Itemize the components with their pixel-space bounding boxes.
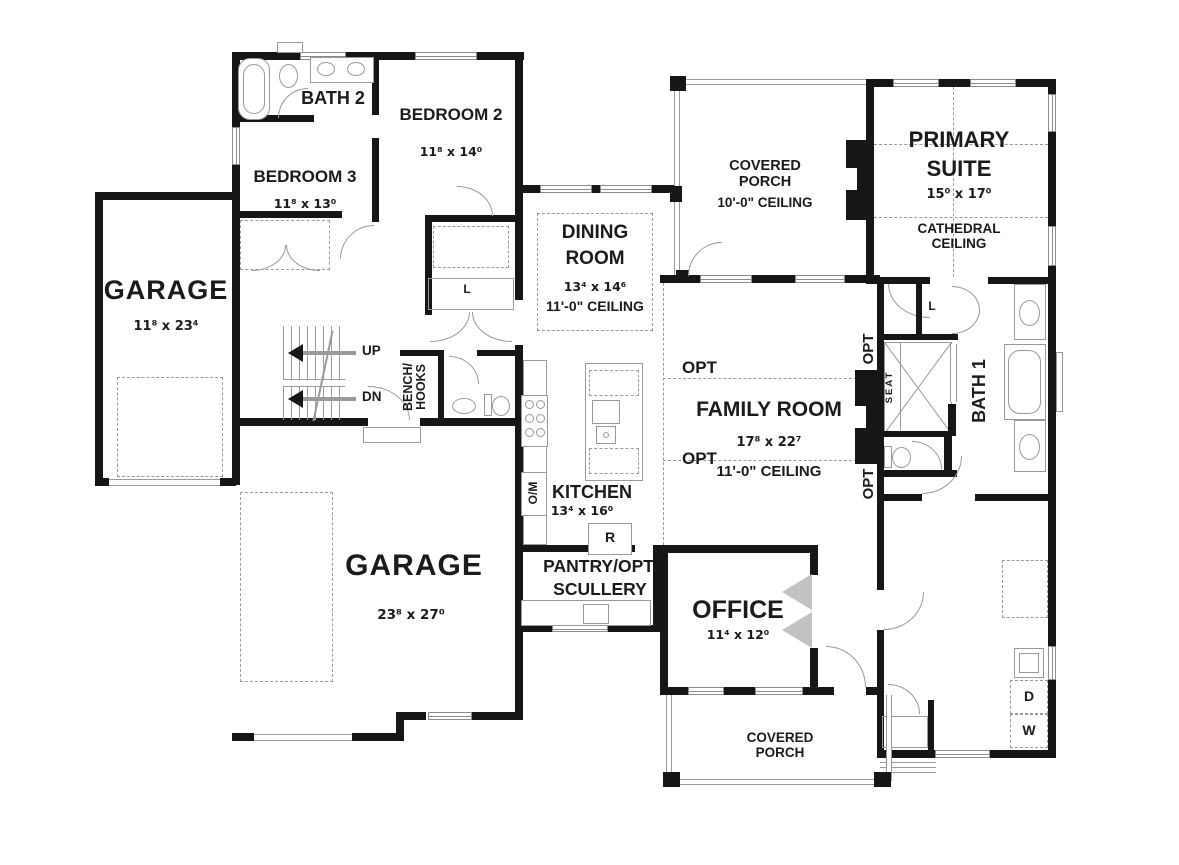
window [970,79,1016,87]
wall [818,687,834,695]
wall [95,478,109,486]
washer-label: W [1010,723,1048,738]
wall [810,648,818,695]
wall [232,211,342,218]
room-ceiling-dining: 11'-0" CEILING [530,299,660,314]
room-dims-primary: 15⁰ x 17⁰ [900,188,1018,202]
up-arrow-head [288,344,303,362]
room-open-edge [663,283,664,545]
porch-edge [666,695,672,781]
room-label-porch-top-1: COVERED [713,159,817,175]
dn-arrow [300,397,356,401]
laundry-sink [1019,653,1039,673]
window [795,275,845,283]
room-label-dining-1: DINING [540,223,650,244]
burner [525,414,534,423]
porch-edge [886,695,892,781]
garage-door [109,479,220,486]
garage-door-path [240,492,333,682]
room-label-family: FAMILY ROOM [688,399,850,422]
window [415,52,477,60]
door-arc [884,592,924,630]
toilet-tank [884,446,892,468]
wall [477,350,521,356]
wall [866,79,874,284]
column [874,772,891,787]
wall [420,418,522,426]
wall [975,494,1056,501]
shower-glass [950,344,957,402]
floor-plan: GARAGE 11⁸ x 23⁴ BATH 2 BEDROOM 3 11⁸ x … [0,0,1179,865]
pantry-sink [583,604,609,624]
fireplace [855,428,878,464]
opt-label-h2: OPT [682,450,730,468]
door-arc [826,646,866,687]
island-seating [589,448,639,474]
room-label-dining-2: ROOM [540,249,650,270]
stoop [363,427,421,443]
room-ceiling-primary-2: CEILING [903,237,1015,252]
room-dims-dining: 13⁴ x 14⁶ [540,280,650,294]
room-dims-garage-left: 11⁸ x 23⁴ [103,320,229,334]
window [1048,226,1056,266]
stairs-dn-label: DN [362,390,392,405]
fireplace [855,370,878,406]
room-ceiling-porch-top: 10'-0" CEILING [703,196,827,211]
wall [988,277,1056,284]
wall [810,545,818,575]
room-label-garage-left: GARAGE [103,276,229,305]
room-dims-family: 17⁸ x 22⁷ [688,436,850,450]
drain [603,432,609,438]
room-label-pantry-1: PANTRY/OPT. [536,557,664,576]
window [1048,94,1056,132]
tub-bay [1056,352,1063,412]
door-arc [430,312,470,342]
room-ceiling-primary-1: CATHEDRAL [903,222,1015,237]
room-label-bath1: BATH 1 [970,346,992,436]
door-arc [457,186,493,216]
door-arc [340,225,374,259]
toilet [492,396,510,416]
island-seating [589,370,639,396]
wall [232,733,254,741]
wall [515,188,523,300]
wall [515,52,523,195]
sink [317,62,335,76]
burner [536,414,545,423]
room-dims-office: 11⁴ x 12⁰ [686,628,790,642]
sink [1019,300,1040,326]
toilet [279,64,298,88]
window [700,275,752,283]
wall [95,192,240,200]
toilet [892,447,911,468]
window [232,127,240,165]
room-label-porch-top-2: PORCH [713,175,817,191]
window [540,185,592,193]
wall [220,478,236,486]
door-arc [449,356,479,384]
column [670,76,686,91]
wall [425,215,522,222]
door-arc [952,310,980,334]
room-label-kitchen: KITCHEN [546,483,638,502]
room-label-porch-bottom-1: COVERED [738,731,822,746]
porch-edge [675,79,873,85]
closet-rod [1002,560,1048,618]
sink [452,398,476,414]
bench-hooks-label: BENCH/HOOKS [400,345,430,429]
window [688,687,724,695]
door-arc [688,242,722,276]
opt-label-v1: OPT [861,327,877,371]
wall [396,712,426,720]
garage-door-path [117,377,223,477]
room-dims-bedroom2: 11⁸ x 14⁰ [390,145,512,159]
room-label-bedroom3: BEDROOM 3 [240,168,370,186]
wall [372,138,379,222]
toilet-tank [484,394,492,416]
fireplace-notch [846,168,857,190]
window [428,712,472,720]
wall [438,350,444,426]
burner [525,428,534,437]
porch-edge [674,79,680,279]
porch-edge [666,779,890,785]
dn-arrow-head [288,390,303,408]
refrigerator-label: R [592,530,628,545]
bench-hooks-lines: BENCH/HOOKS [402,357,429,417]
door-arc [952,286,980,310]
wall [352,733,402,741]
sink [347,62,365,76]
linen-label-2: L [917,300,947,313]
wall [866,277,930,284]
up-arrow [300,351,356,355]
window [893,79,939,87]
closet [433,226,509,268]
window [552,625,608,632]
door-arc [922,456,962,494]
ceiling-line [874,217,1048,218]
window [1048,646,1056,680]
opt-label-h1: OPT [682,359,730,377]
column [670,186,682,202]
door-arc [888,684,920,714]
room-label-primary-1: PRIMARY [900,128,1018,152]
room-label-bath2: BATH 2 [296,89,370,108]
room-label-primary-2: SUITE [900,157,1018,181]
burner [536,400,545,409]
shower-seat-label: SEAT [883,357,897,417]
stair-rail [283,379,345,387]
room-label-pantry-2: SCULLERY [536,580,664,599]
linen-label-1: L [452,283,482,296]
oven-microwave-label: O/M [525,468,541,518]
room-dims-garage-main: 23⁸ x 27⁰ [348,608,474,623]
burner [525,400,534,409]
room-label-bedroom2: BEDROOM 2 [390,106,512,124]
room-dims-kitchen: 13⁴ x 16⁰ [536,504,628,518]
room-label-porch-bottom-2: PORCH [738,746,822,761]
fireplace [866,404,878,430]
wall [928,700,934,750]
wall [877,545,884,590]
wall [660,275,880,283]
opt-label-v2: OPT [861,462,877,506]
column [663,772,680,787]
opt-beam-line [663,378,877,379]
room-dims-bedroom3: 11⁸ x 13⁰ [240,197,370,211]
island-sink [592,400,620,424]
wall [95,192,103,486]
room-label-office: OFFICE [686,597,790,624]
wall [880,494,922,501]
bathtub [1008,350,1041,414]
stairs-up-label: UP [362,344,392,359]
garage-door [254,734,352,741]
sink [1019,434,1040,460]
wall [880,431,952,437]
window [755,687,803,695]
burner [536,428,545,437]
window [600,185,652,193]
wall [884,334,958,340]
wall [1048,284,1056,758]
wall [660,545,815,553]
room-label-garage-main: GARAGE [342,550,486,582]
cabinet [277,42,303,53]
shower-seat-line [900,342,901,434]
dryer-label: D [1010,689,1048,704]
wall [866,687,880,695]
bathtub [243,64,265,114]
door-arc [472,312,512,342]
window [935,750,990,758]
